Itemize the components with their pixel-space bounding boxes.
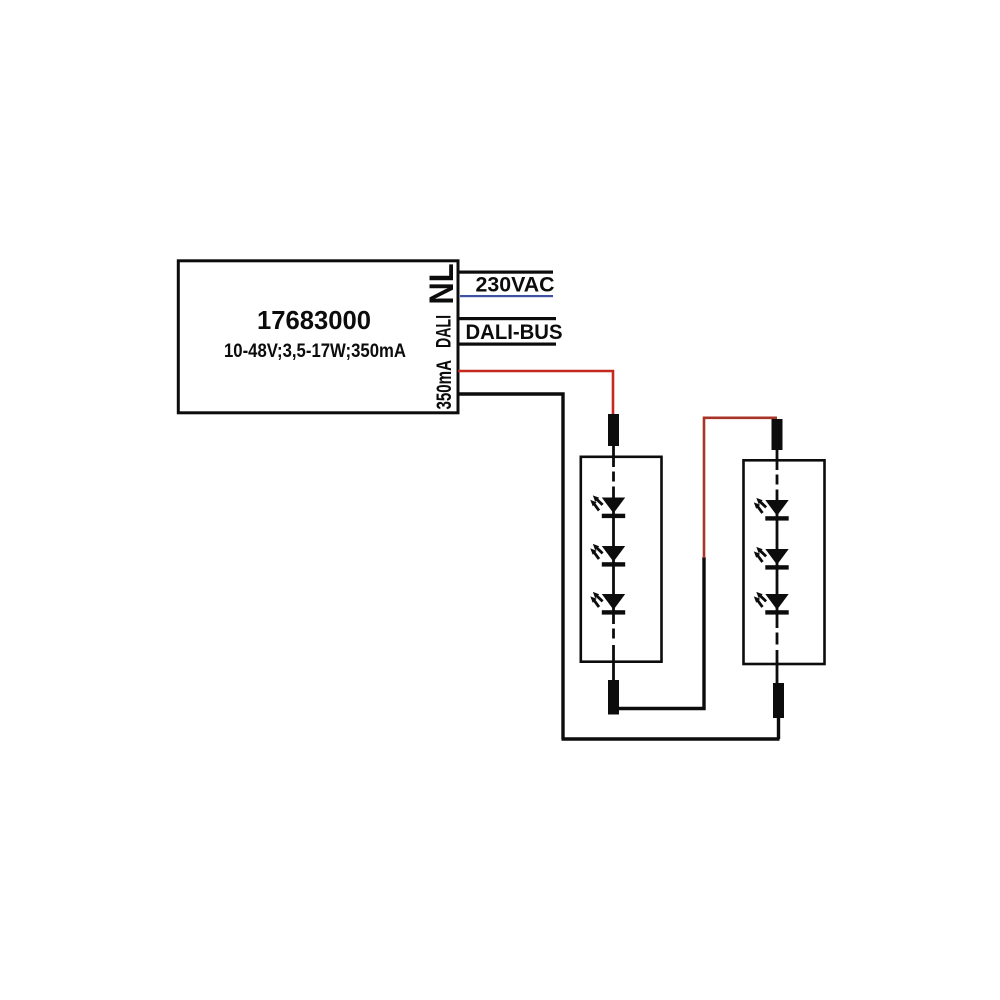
svg-text:DALI-BUS: DALI-BUS — [466, 320, 563, 344]
svg-text:DALI: DALI — [432, 315, 456, 348]
svg-text:350mA: 350mA — [433, 360, 456, 410]
svg-text:230VAC: 230VAC — [476, 273, 555, 297]
svg-text:10-48V;3,5-17W;350mA: 10-48V;3,5-17W;350mA — [224, 340, 406, 362]
svg-text:17683000: 17683000 — [257, 305, 371, 335]
svg-text:NL: NL — [423, 264, 461, 305]
